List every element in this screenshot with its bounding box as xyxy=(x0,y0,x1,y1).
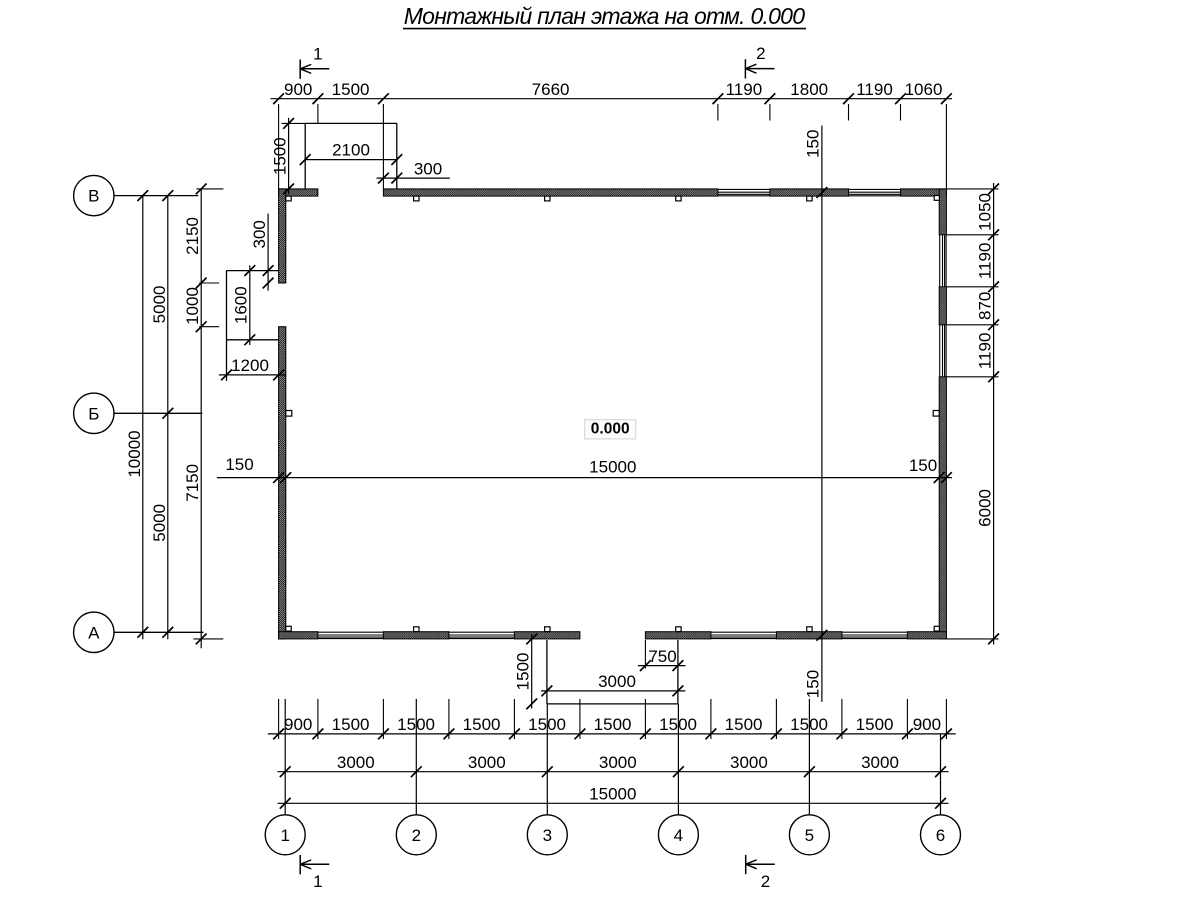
svg-text:7150: 7150 xyxy=(183,464,202,502)
svg-text:1050: 1050 xyxy=(976,193,995,231)
svg-text:2: 2 xyxy=(761,872,770,891)
svg-text:15000: 15000 xyxy=(589,458,636,477)
svg-text:3: 3 xyxy=(543,826,552,845)
svg-text:1800: 1800 xyxy=(790,80,828,99)
svg-text:1500: 1500 xyxy=(594,715,632,734)
svg-text:1060: 1060 xyxy=(905,80,943,99)
svg-text:1190: 1190 xyxy=(726,80,763,99)
svg-text:1: 1 xyxy=(280,826,289,845)
svg-text:1190: 1190 xyxy=(976,243,995,280)
svg-text:А: А xyxy=(88,623,100,642)
svg-text:1500: 1500 xyxy=(725,715,763,734)
svg-text:5: 5 xyxy=(805,826,814,845)
svg-text:15000: 15000 xyxy=(589,785,636,804)
svg-text:2: 2 xyxy=(756,44,765,63)
svg-text:750: 750 xyxy=(648,647,676,666)
svg-text:1500: 1500 xyxy=(514,652,533,690)
svg-text:3000: 3000 xyxy=(599,753,637,772)
svg-text:Монтажный план этажа на отм. 0: Монтажный план этажа на отм. 0.000 xyxy=(404,3,805,29)
svg-text:1500: 1500 xyxy=(463,715,501,734)
svg-text:1500: 1500 xyxy=(332,715,370,734)
svg-text:150: 150 xyxy=(804,130,823,158)
svg-text:В: В xyxy=(88,187,99,206)
svg-text:1190: 1190 xyxy=(976,333,995,370)
svg-text:5000: 5000 xyxy=(150,285,169,323)
svg-text:3000: 3000 xyxy=(861,753,899,772)
svg-text:150: 150 xyxy=(909,456,937,475)
svg-text:300: 300 xyxy=(414,159,442,178)
svg-text:870: 870 xyxy=(976,292,995,320)
svg-text:2100: 2100 xyxy=(332,141,370,160)
svg-text:1000: 1000 xyxy=(183,287,202,325)
svg-text:1500: 1500 xyxy=(332,80,370,99)
svg-text:3000: 3000 xyxy=(730,753,768,772)
svg-text:1500: 1500 xyxy=(270,137,289,175)
svg-text:150: 150 xyxy=(804,670,823,698)
svg-text:6: 6 xyxy=(936,826,945,845)
svg-text:900: 900 xyxy=(284,80,312,99)
svg-text:5000: 5000 xyxy=(150,504,169,542)
svg-text:10000: 10000 xyxy=(125,430,144,477)
svg-text:1600: 1600 xyxy=(232,286,251,324)
svg-text:3000: 3000 xyxy=(598,672,636,691)
svg-text:3000: 3000 xyxy=(468,753,506,772)
svg-text:4: 4 xyxy=(674,826,683,845)
svg-text:1: 1 xyxy=(313,872,322,891)
svg-text:300: 300 xyxy=(250,220,269,248)
svg-text:1190: 1190 xyxy=(856,80,893,99)
svg-text:0.000: 0.000 xyxy=(591,421,630,438)
svg-text:1: 1 xyxy=(313,44,322,63)
svg-text:Б: Б xyxy=(88,404,99,423)
svg-text:900: 900 xyxy=(284,715,312,734)
svg-text:2: 2 xyxy=(412,826,421,845)
svg-text:1200: 1200 xyxy=(231,356,269,375)
svg-text:150: 150 xyxy=(225,455,253,474)
svg-text:3000: 3000 xyxy=(337,753,375,772)
svg-text:7660: 7660 xyxy=(532,80,570,99)
svg-text:6000: 6000 xyxy=(976,489,995,527)
svg-text:1500: 1500 xyxy=(856,715,894,734)
svg-text:900: 900 xyxy=(913,715,941,734)
svg-text:2150: 2150 xyxy=(183,217,202,255)
